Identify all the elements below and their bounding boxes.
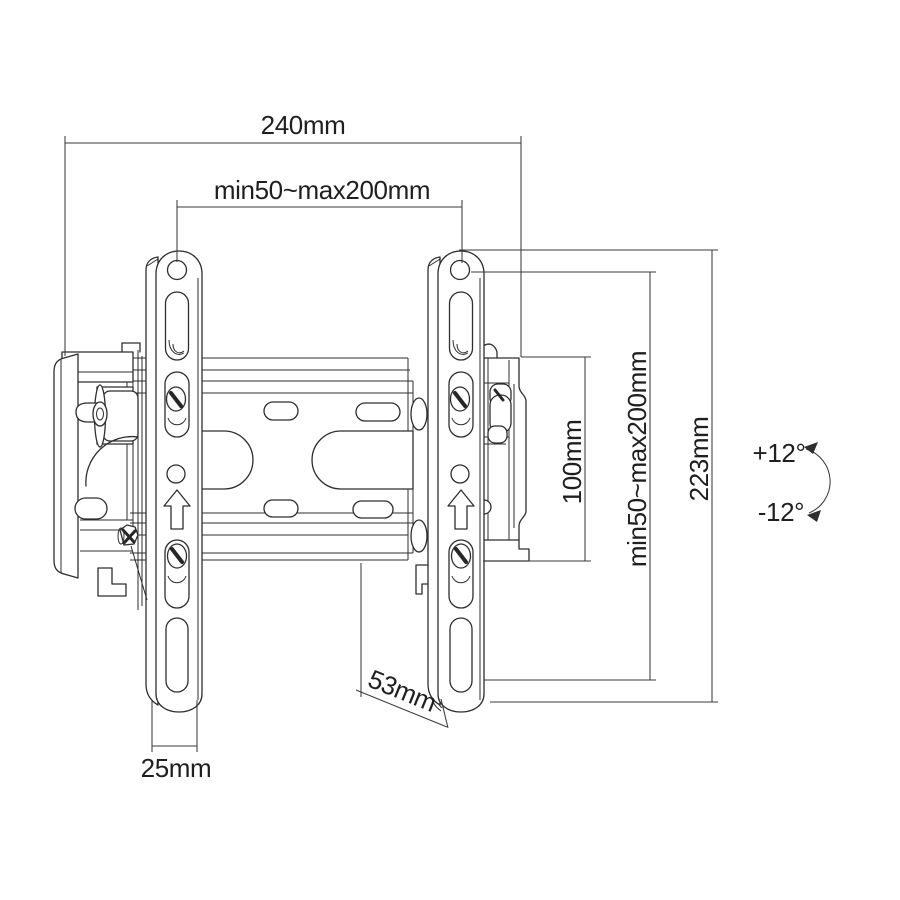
side-view-assembly — [54, 343, 147, 610]
dimension-vesa-width: min50~max200mm — [177, 175, 462, 263]
locking-tab — [411, 398, 427, 430]
label-tilt-up: +12° — [753, 438, 806, 468]
tilt-arc-arrowhead — [804, 442, 818, 454]
dimension-overall-height: 223mm — [459, 250, 718, 702]
label-tilt-down: -12° — [758, 497, 804, 527]
plate-side-profile — [477, 344, 529, 561]
label-overall-width: 240mm — [261, 110, 346, 140]
right-arm — [428, 251, 484, 712]
arm-hole — [167, 465, 185, 483]
arm-hole — [451, 465, 469, 483]
label-vesa-height: min50~max200mm — [622, 351, 652, 567]
arm-top-hole — [168, 261, 187, 280]
plate-slot — [353, 501, 393, 518]
arm-top-hole — [451, 261, 470, 280]
wall-mount-diagram: 240mm min50~max200mm 100mm min50~max200m… — [0, 0, 900, 900]
plate-slot — [264, 402, 298, 420]
label-vesa-width: min50~max200mm — [214, 175, 430, 205]
side-slot — [75, 498, 107, 519]
locking-tab — [411, 520, 427, 552]
left-arm — [146, 251, 202, 712]
tilt-indicator: +12° -12° — [753, 438, 831, 527]
arm-slot — [166, 618, 188, 692]
tilt-arc-arrowhead — [807, 510, 821, 522]
arm-slot — [166, 292, 189, 360]
hook — [488, 426, 507, 443]
arm-slot — [450, 292, 473, 360]
label-arm-width: 25mm — [141, 753, 212, 783]
tilt-arc — [806, 449, 830, 513]
wall-plate-side — [54, 354, 78, 578]
plate-slot — [356, 403, 400, 421]
label-overall-height: 223mm — [684, 417, 714, 502]
plate-slot — [264, 500, 298, 517]
plate-cutout-right — [312, 431, 413, 489]
arm-slot — [450, 618, 472, 692]
label-plate-height: 100mm — [557, 420, 587, 505]
tilt-clamp-block — [103, 391, 138, 441]
technical-drawing: 240mm min50~max200mm 100mm min50~max200m… — [0, 0, 900, 900]
